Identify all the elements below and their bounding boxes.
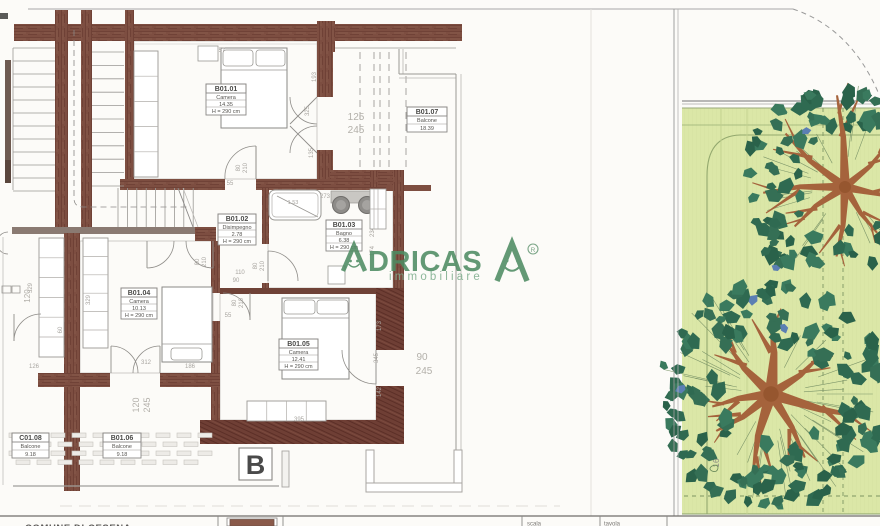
svg-text:90: 90 <box>233 278 240 284</box>
svg-text:186: 186 <box>185 364 196 370</box>
svg-text:135: 135 <box>309 147 315 158</box>
svg-text:Balcone: Balcone <box>417 118 437 124</box>
svg-text:395: 395 <box>294 417 305 423</box>
svg-text:R: R <box>531 247 536 254</box>
svg-text:80: 80 <box>195 258 201 265</box>
svg-text:80: 80 <box>253 262 259 269</box>
svg-text:80: 80 <box>232 299 238 306</box>
svg-text:126: 126 <box>29 364 40 370</box>
svg-text:60: 60 <box>58 326 64 333</box>
svg-text:245: 245 <box>348 125 365 136</box>
svg-text:B01.05: B01.05 <box>287 341 310 348</box>
svg-text:B01.06: B01.06 <box>111 435 134 442</box>
svg-text:B: B <box>246 450 266 480</box>
svg-text:scala: scala <box>527 522 542 526</box>
svg-text:55: 55 <box>227 181 234 187</box>
svg-text:57: 57 <box>219 48 226 54</box>
svg-text:1.53: 1.53 <box>288 200 299 206</box>
svg-text:125: 125 <box>348 112 365 123</box>
svg-text:80: 80 <box>236 164 242 171</box>
svg-text:245: 245 <box>416 366 433 377</box>
svg-text:B01.07: B01.07 <box>416 109 439 116</box>
svg-text:312: 312 <box>141 360 152 366</box>
svg-text:142: 142 <box>377 386 383 397</box>
svg-text:9.18: 9.18 <box>25 452 36 458</box>
svg-text:210: 210 <box>243 162 249 173</box>
svg-text:B01.04: B01.04 <box>128 290 151 297</box>
svg-text:C01.08: C01.08 <box>19 435 42 442</box>
svg-text:120: 120 <box>131 397 141 412</box>
svg-text:173: 173 <box>377 320 383 331</box>
svg-text:325: 325 <box>305 105 311 116</box>
svg-text:immobiliare: immobiliare <box>389 271 483 283</box>
svg-text:9.18: 9.18 <box>117 452 128 458</box>
svg-text:345: 345 <box>374 352 380 363</box>
svg-text:329: 329 <box>28 282 34 293</box>
svg-text:210: 210 <box>260 260 266 271</box>
svg-text:B01.02: B01.02 <box>226 216 249 223</box>
svg-text:245: 245 <box>142 397 152 412</box>
svg-text:Balcone: Balcone <box>21 444 41 450</box>
svg-text:tavola: tavola <box>604 522 621 526</box>
svg-text:H = 290 cm: H = 290 cm <box>212 109 241 115</box>
svg-text:90: 90 <box>416 352 428 363</box>
svg-text:210: 210 <box>202 256 208 267</box>
svg-text:329: 329 <box>86 294 92 305</box>
svg-text:273: 273 <box>320 194 331 200</box>
svg-text:110: 110 <box>235 270 245 276</box>
svg-text:210: 210 <box>239 297 245 308</box>
svg-text:H = 290 cm: H = 290 cm <box>125 313 154 319</box>
svg-text:B01.01: B01.01 <box>215 86 238 93</box>
svg-text:B01.03: B01.03 <box>333 222 356 229</box>
svg-text:H = 290 cm: H = 290 cm <box>223 239 252 245</box>
svg-text:18.39: 18.39 <box>420 126 434 132</box>
svg-text:193: 193 <box>312 71 318 82</box>
svg-text:H = 290 cm: H = 290 cm <box>284 364 313 370</box>
svg-text:55: 55 <box>225 313 232 319</box>
svg-text:Balcone: Balcone <box>112 444 132 450</box>
